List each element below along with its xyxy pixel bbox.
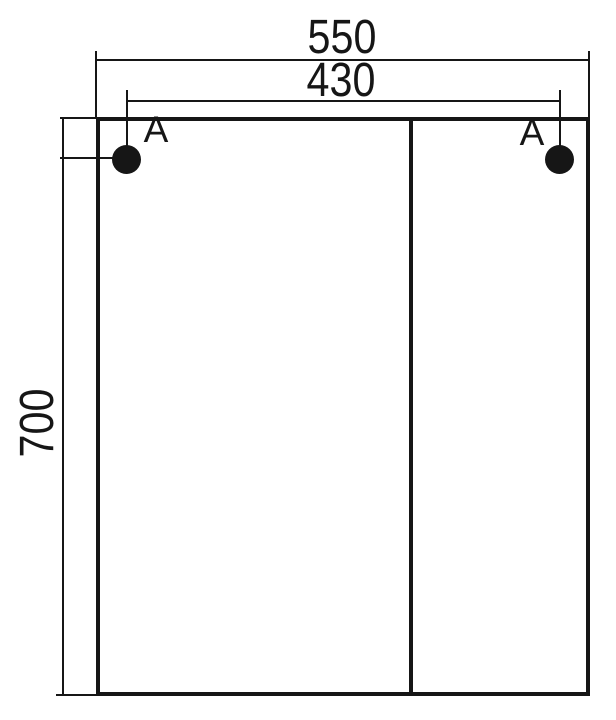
hole-label-left: A [126, 111, 186, 148]
dim-width-ext-left [95, 51, 97, 119]
dim-height-label: 700 [14, 371, 62, 474]
dim-hole-spacing-label: 430 [289, 57, 392, 105]
door-divider-line [409, 121, 413, 692]
dim-height-tick-hole-center [60, 157, 113, 159]
dim-height-tick-bottom [56, 694, 97, 696]
dim-width-ext-right [588, 51, 590, 119]
hole-label-right: A [502, 114, 562, 151]
mounting-hole-left [112, 145, 141, 174]
dim-height-tick-top [60, 117, 97, 119]
technical-drawing: 550 430 700 A A [0, 0, 616, 720]
cabinet-outline [96, 117, 590, 696]
